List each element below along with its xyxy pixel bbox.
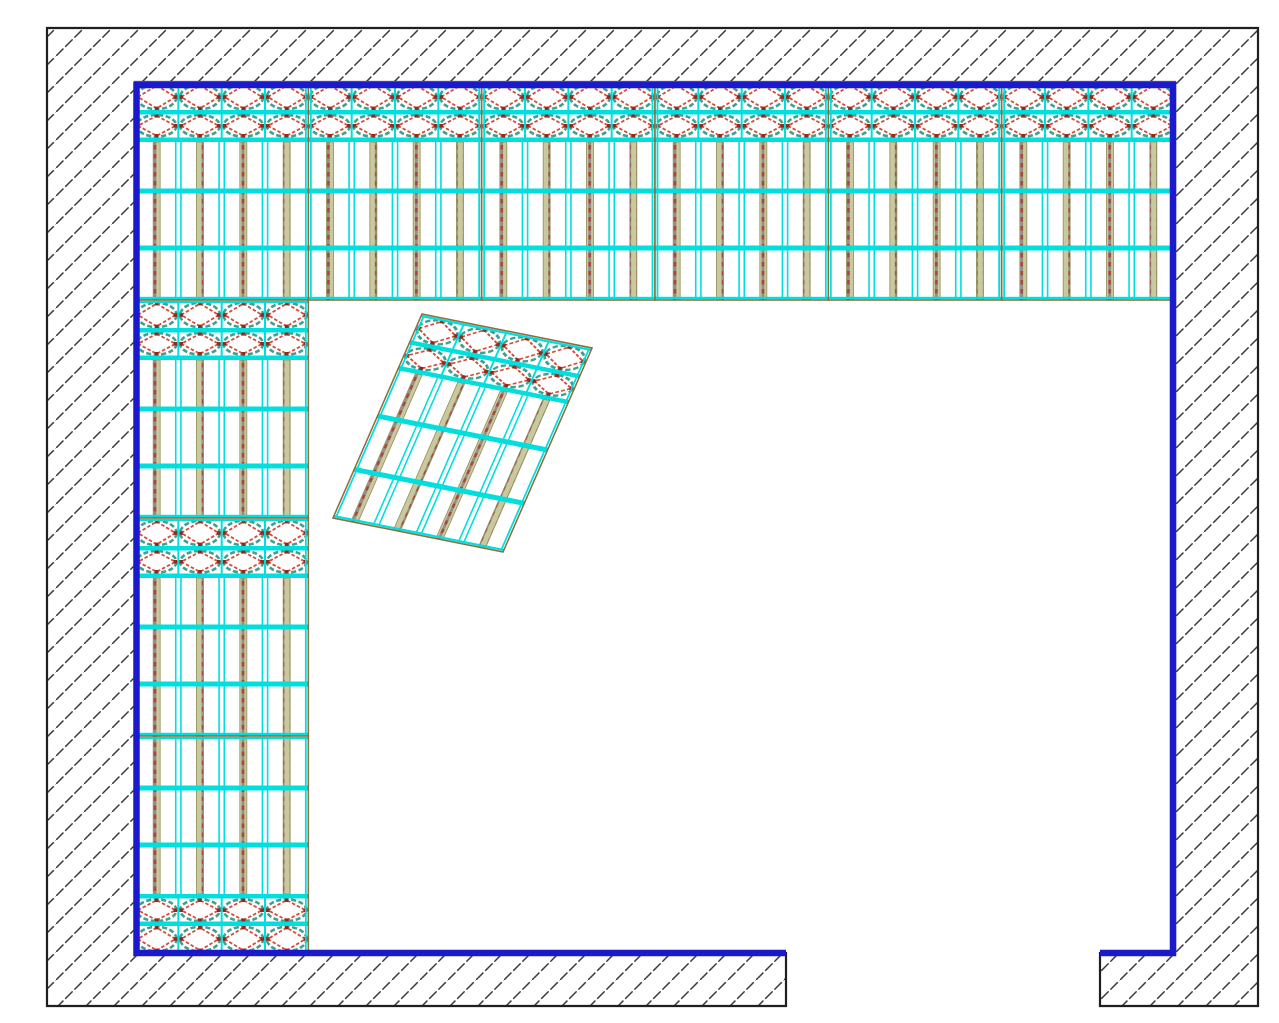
- fence-panel: [135, 518, 308, 736]
- fence-panel: [482, 82, 655, 300]
- fence-panel: [1002, 82, 1175, 300]
- fence-panel: [308, 82, 481, 300]
- floor-plan-canvas[interactable]: [0, 0, 1279, 1023]
- fence-panel: [135, 736, 308, 954]
- fence-panel: [135, 300, 308, 518]
- fence-panel: [135, 82, 308, 300]
- cad-drawing-area[interactable]: [0, 0, 1279, 1023]
- fence-panel: [655, 82, 828, 300]
- fence-panel: [828, 82, 1001, 300]
